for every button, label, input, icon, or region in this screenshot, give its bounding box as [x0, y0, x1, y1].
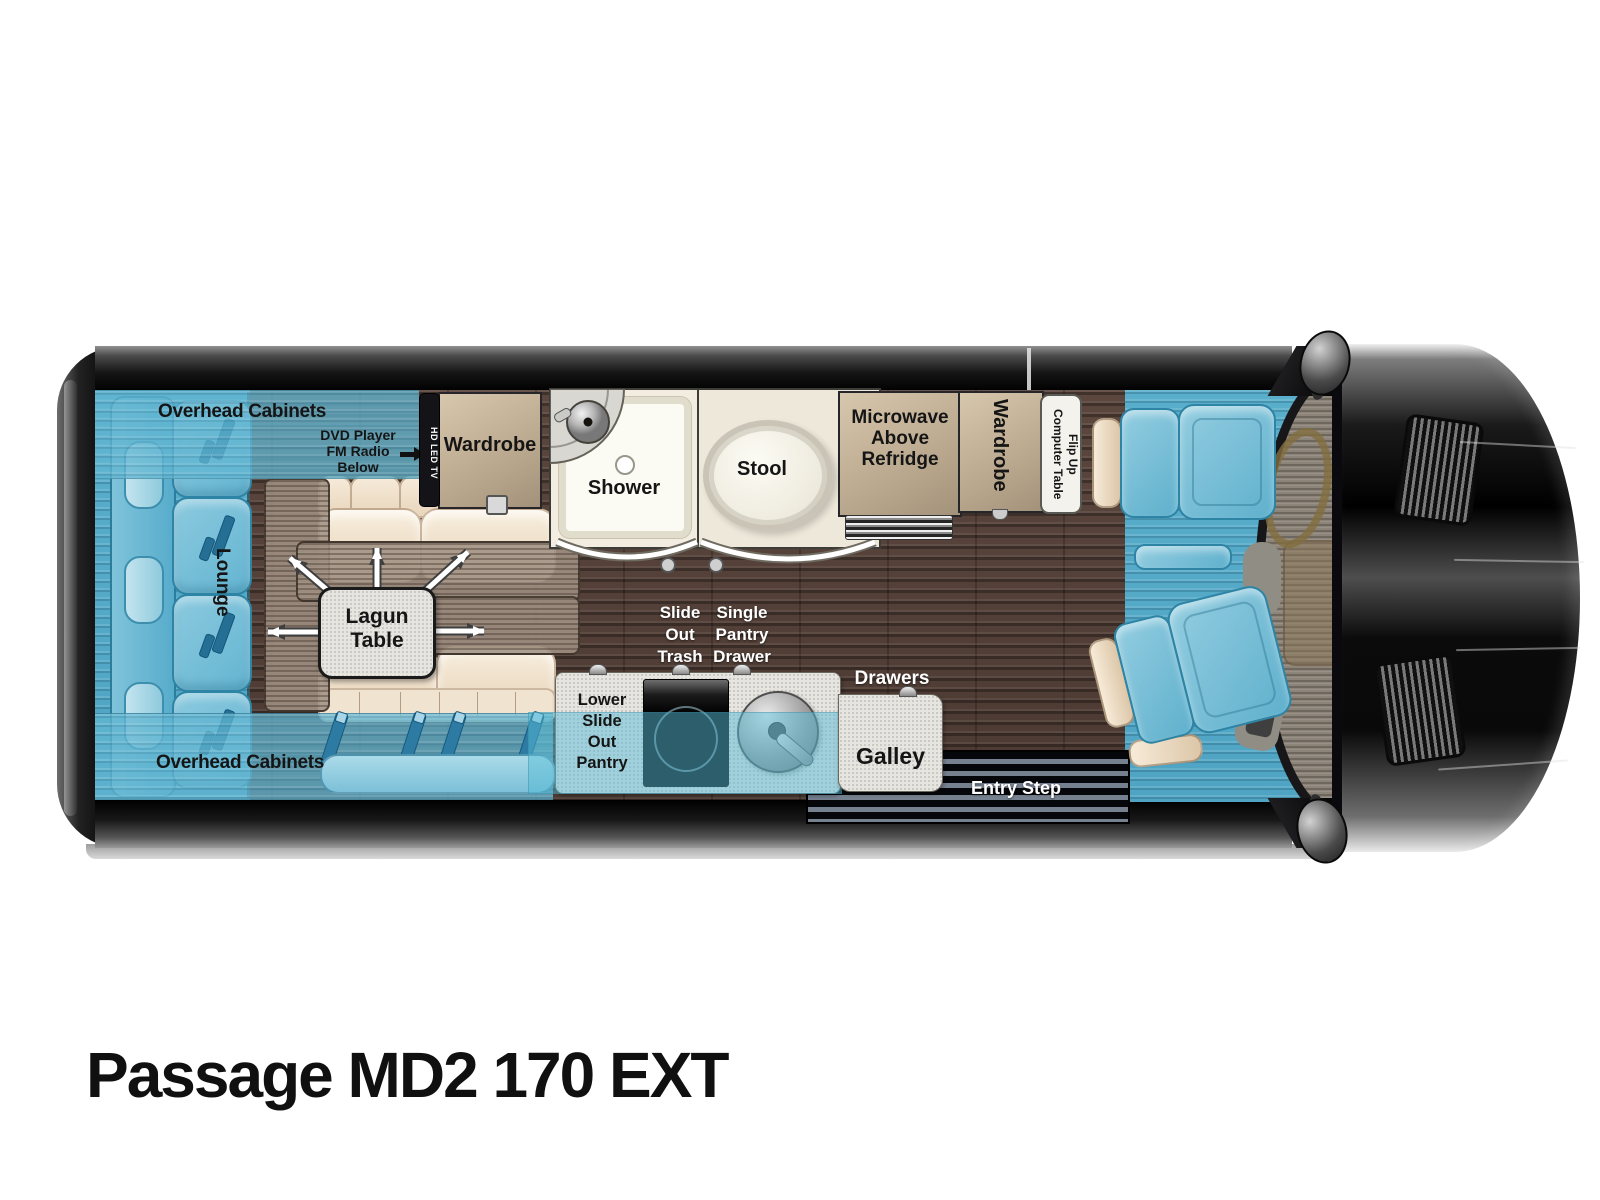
stool-label: Stool	[703, 458, 821, 481]
lower-pantry-label: Lower Slide Out Pantry	[556, 690, 648, 774]
flip-up-computer-table: Flip Up Computer Table	[1040, 394, 1082, 514]
fridge-label-line2: Above	[840, 428, 960, 449]
shower-label: Shower	[560, 477, 688, 500]
wardrobe-right: Wardrobe	[958, 391, 1044, 513]
wardrobe-latch	[486, 495, 508, 515]
media-note-line1: DVD Player	[312, 427, 404, 443]
single-pantry-drawer-label: Single Pantry Drawer	[700, 602, 784, 668]
rear-bumper-highlight	[64, 380, 77, 816]
floorplan-title: Passage MD2 170 EXT	[86, 1038, 727, 1112]
flip-table-label-line1: Flip Up	[1065, 396, 1080, 512]
lagun-table-label-line1: Lagun	[321, 605, 433, 629]
media-note-line3: Below	[312, 459, 404, 475]
tv-panel: HD LED TV	[419, 393, 440, 507]
tv-label: HD LED TV	[429, 427, 439, 479]
lagun-table: Lagun Table	[318, 587, 436, 679]
drawers-label: Drawers	[846, 668, 938, 690]
rear-pillow-2	[124, 556, 164, 624]
drawer-knob-icon	[589, 664, 607, 675]
sofa-front-roll	[320, 754, 556, 794]
sliding-door-arcs-icon	[549, 538, 879, 580]
galley-box: Galley	[838, 694, 943, 792]
van-wall-top	[95, 346, 1292, 392]
overhead-cabinets-bottom-label: Overhead Cabinets	[156, 752, 324, 774]
fridge-label-line1: Microwave	[840, 407, 960, 428]
entry-step-label: Entry Step	[946, 778, 1086, 799]
wardrobe-left-label: Wardrobe	[440, 434, 540, 457]
media-note-line2: FM Radio	[312, 443, 404, 459]
flip-table-label-line2: Computer Table	[1050, 396, 1065, 512]
media-arrow-shaft	[400, 452, 415, 457]
hood-vent-icon	[1393, 413, 1485, 527]
van-hood	[1332, 344, 1580, 852]
corner-sink-icon	[550, 389, 632, 471]
hood-vent-icon	[1373, 653, 1467, 767]
floorplan-canvas: Overhead Cabinets Overhead Cabinets Loun…	[0, 0, 1600, 1200]
fridge-microwave: Microwave Above Refridge	[838, 391, 962, 517]
media-note: DVD Player FM Radio Below	[312, 427, 404, 475]
fridge-vent-icon	[845, 515, 953, 540]
lagun-table-label-line2: Table	[321, 629, 433, 653]
overhead-cabinets-top-label: Overhead Cabinets	[158, 401, 326, 423]
fridge-label-line3: Refridge	[840, 449, 960, 470]
galley-label: Galley	[839, 743, 942, 770]
sliding-door-seam	[1027, 348, 1031, 390]
wardrobe-right-label: Wardrobe	[988, 399, 1011, 505]
wardrobe-left: Wardrobe	[438, 392, 542, 509]
lounge-label: Lounge	[211, 548, 233, 640]
passenger-seat	[1092, 404, 1252, 579]
drawer-knob-icon	[899, 686, 917, 697]
